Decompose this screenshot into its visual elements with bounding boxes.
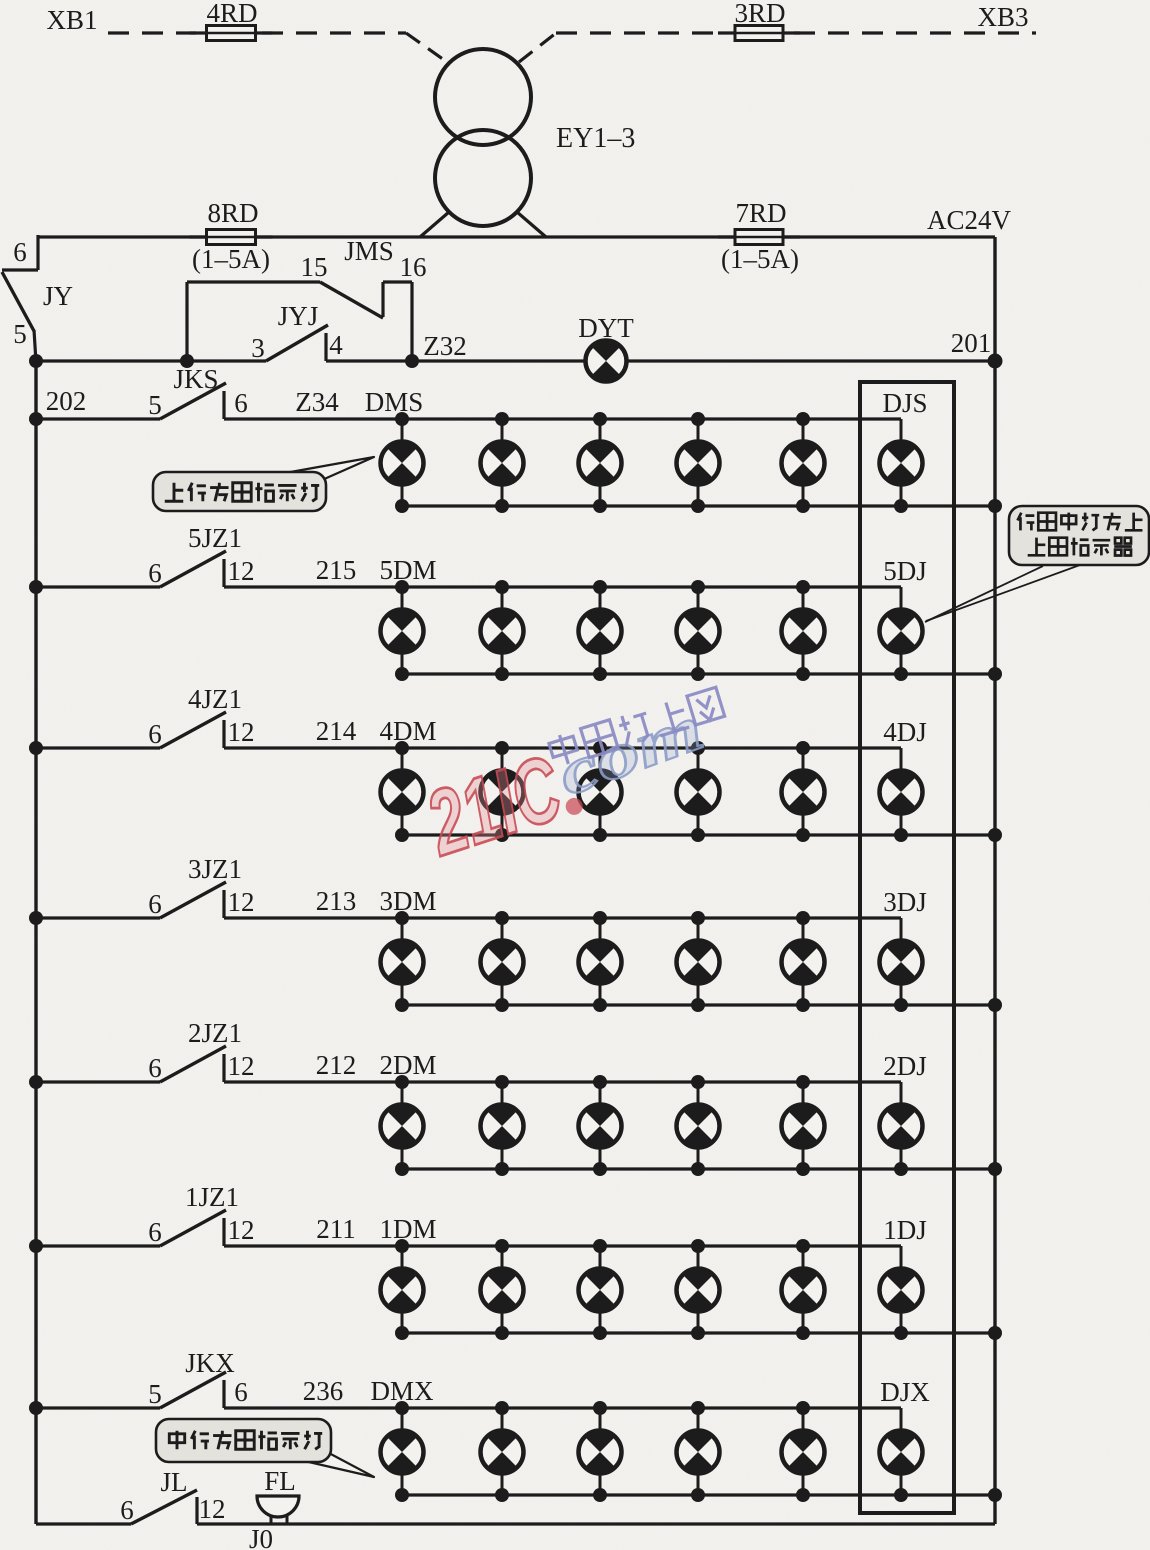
svg-text:201: 201 [951,328,992,358]
svg-text:EY1–3: EY1–3 [556,123,635,154]
svg-text:3JZ1: 3JZ1 [188,854,242,884]
svg-text:6: 6 [148,889,162,919]
svg-text:1JZ1: 1JZ1 [185,1182,239,1212]
svg-text:DMS: DMS [365,387,424,417]
svg-text:JYJ: JYJ [278,301,319,331]
svg-text:XB3: XB3 [977,2,1028,32]
svg-text:JY: JY [43,281,73,311]
svg-text:(1–5A): (1–5A) [721,244,799,274]
svg-text:1DJ: 1DJ [883,1215,927,1245]
svg-text:12: 12 [199,1494,226,1524]
svg-text:AC24V: AC24V [927,205,1012,235]
svg-text:1DM: 1DM [379,1214,436,1244]
svg-text:3RD: 3RD [734,0,785,28]
svg-text:6: 6 [234,1377,248,1407]
svg-text:6: 6 [234,388,248,418]
svg-text:212: 212 [316,1050,357,1080]
svg-text:5DM: 5DM [379,555,436,585]
svg-text:2DM: 2DM [379,1050,436,1080]
svg-text:213: 213 [316,886,357,916]
svg-text:JMS: JMS [344,236,394,266]
svg-text:2DJ: 2DJ [883,1051,927,1081]
svg-text:3: 3 [251,333,265,363]
svg-text:FL: FL [264,1466,296,1496]
svg-text:4DJ: 4DJ [883,717,927,747]
svg-text:6: 6 [120,1495,134,1525]
svg-text:202: 202 [46,386,87,416]
svg-text:7RD: 7RD [735,198,786,228]
svg-text:236: 236 [303,1376,344,1406]
svg-text:5: 5 [148,1379,162,1409]
svg-text:4RD: 4RD [206,0,257,28]
svg-text:2JZ1: 2JZ1 [188,1018,242,1048]
svg-text:DJS: DJS [882,388,927,418]
svg-text:XB1: XB1 [46,5,97,35]
svg-text:JKX: JKX [185,1348,235,1378]
svg-text:12: 12 [228,556,255,586]
svg-text:6: 6 [148,1053,162,1083]
svg-text:5DJ: 5DJ [883,556,927,586]
svg-text:6: 6 [13,237,27,267]
svg-text:211: 211 [316,1214,356,1244]
svg-text:214: 214 [316,716,357,746]
svg-text:5JZ1: 5JZ1 [188,523,242,553]
svg-text:6: 6 [148,1217,162,1247]
svg-text:12: 12 [228,1051,255,1081]
svg-text:8RD: 8RD [207,198,258,228]
svg-text:(1–5A): (1–5A) [192,244,270,274]
svg-text:6: 6 [148,558,162,588]
svg-text:215: 215 [316,555,357,585]
svg-text:J0: J0 [249,1524,273,1550]
svg-text:16: 16 [400,252,427,282]
svg-text:JL: JL [161,1467,188,1497]
svg-text:15: 15 [301,252,328,282]
svg-text:3DM: 3DM [379,886,436,916]
svg-text:12: 12 [228,1215,255,1245]
svg-text:JKS: JKS [173,364,218,394]
svg-text:6: 6 [148,719,162,749]
svg-text:3DJ: 3DJ [883,887,927,917]
svg-text:5: 5 [13,319,27,349]
svg-text:12: 12 [228,887,255,917]
svg-text:4JZ1: 4JZ1 [188,684,242,714]
svg-text:DJX: DJX [880,1377,930,1407]
svg-text:4DM: 4DM [379,716,436,746]
svg-text:Z32: Z32 [423,331,467,361]
svg-text:12: 12 [228,717,255,747]
svg-text:Z34: Z34 [295,387,339,417]
svg-text:4: 4 [329,330,343,360]
svg-text:5: 5 [148,390,162,420]
svg-text:DYT: DYT [578,313,634,343]
